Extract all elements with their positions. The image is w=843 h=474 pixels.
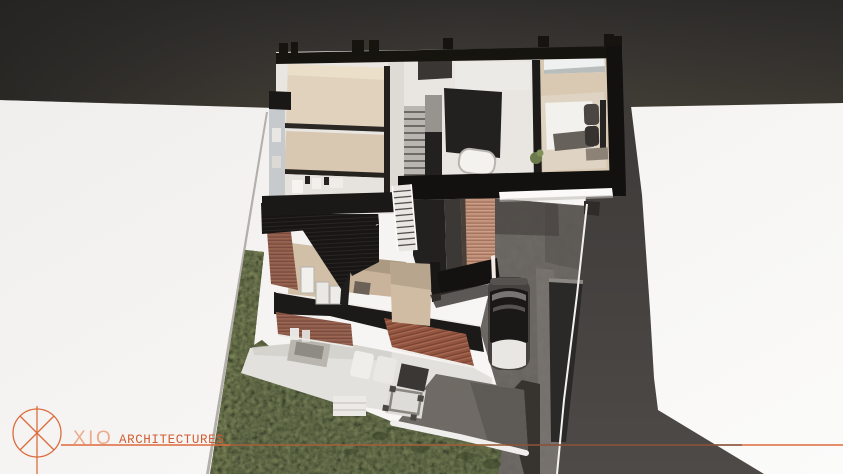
- svg-text:XIO: XIO: [73, 428, 113, 449]
